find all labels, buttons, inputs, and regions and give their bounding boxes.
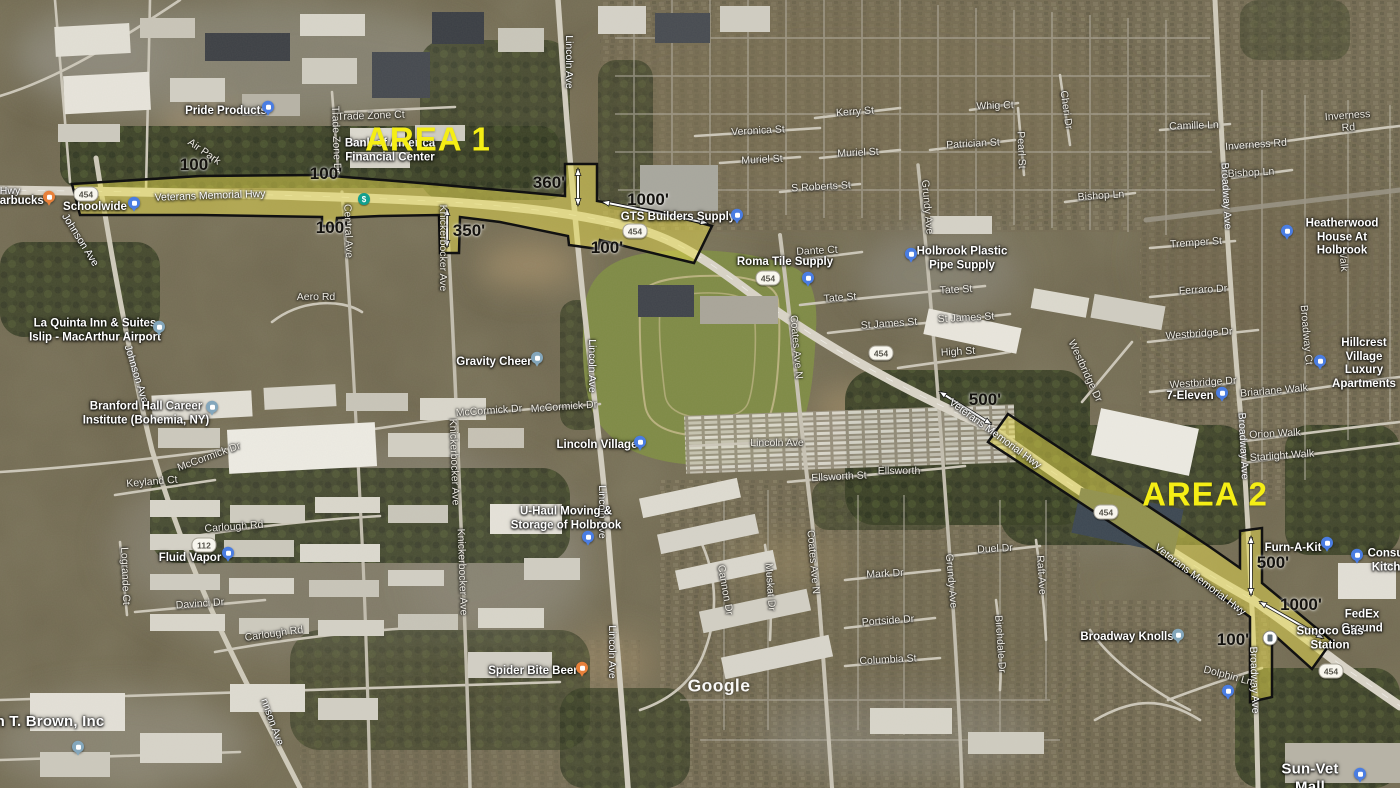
map-labels: HwyVeterans Memorial HwyVeterans Memoria… bbox=[0, 0, 1400, 788]
poi-label-sunoco-gas-station[interactable]: Sunoco Gas Station bbox=[1295, 625, 1365, 652]
marker-gravity-cheer-icon[interactable] bbox=[531, 352, 543, 364]
measurement-label-100: 100' bbox=[180, 155, 212, 175]
marker-t-brown-inc-icon[interactable] bbox=[72, 741, 84, 753]
measurement-label-1000: 1000' bbox=[1280, 595, 1322, 615]
street-label-coates-ave-n: Coates Ave N bbox=[804, 530, 822, 595]
street-label-lincoln-ave: Lincoln Ave bbox=[606, 625, 618, 679]
street-label-johnson-ave: Johnson Ave bbox=[59, 211, 101, 268]
measurement-label-100: 100' bbox=[310, 164, 342, 184]
marker-broadway-knolls-icon[interactable] bbox=[1172, 629, 1184, 641]
street-label-knickerbocker-ave: Knickerbocker Ave bbox=[454, 528, 469, 615]
street-label-nnson-ave: nnson Ave bbox=[258, 697, 286, 747]
street-label-mccormick-dr: McCormick Dr bbox=[455, 403, 522, 420]
poi-label-consumer-kitchens[interactable]: Consumer Kitchens bbox=[1368, 547, 1400, 574]
marker-roma-tile-supply-icon[interactable] bbox=[802, 272, 814, 284]
street-label-lincoln-ave: Lincoln Ave bbox=[586, 339, 598, 393]
poi-label-la-quinta[interactable]: La Quinta Inn & Suites Islip - MacArthur… bbox=[29, 317, 161, 344]
street-label-lincoln-ave: Lincoln Ave bbox=[563, 35, 575, 89]
street-label-carlough-rd: Carlough Rd bbox=[204, 519, 264, 535]
route-shield-454: 454 bbox=[623, 224, 648, 239]
street-label-veronica-st: Veronica St bbox=[731, 123, 785, 138]
route-shield-112: 112 bbox=[192, 538, 217, 553]
street-label-lincoln-ave: Lincoln Ave bbox=[750, 437, 804, 449]
poi-label-sun-vet-mall[interactable]: Sun-Vet Mall bbox=[1265, 760, 1355, 788]
street-label-raft-ave: Raft Ave bbox=[1033, 555, 1048, 595]
street-label-camille-ln: Camille Ln bbox=[1169, 119, 1219, 133]
street-label-grundy-ave: Grundy Ave bbox=[918, 179, 935, 235]
marker-heatherwood-house-icon[interactable] bbox=[1281, 225, 1293, 237]
street-label-st-james-st: St James St bbox=[860, 316, 917, 332]
measurement-label-100: 100' bbox=[591, 238, 623, 258]
area-label-area-1-label: AREA 1 bbox=[365, 121, 491, 160]
route-shield-454: 454 bbox=[869, 346, 894, 361]
street-label-birchdale-dr: Birchdale Dr bbox=[992, 615, 1008, 674]
poi-label-t-brown-inc[interactable]: n T. Brown, Inc bbox=[0, 713, 104, 731]
marker-schoolwide-icon[interactable] bbox=[128, 197, 140, 209]
measurement-label-100: 100' bbox=[316, 218, 348, 238]
street-label-cheri-dr: Cheri Dr bbox=[1057, 90, 1075, 130]
street-label-tate-st: Tate St bbox=[939, 283, 972, 297]
poi-label-fluid-vapor[interactable]: Fluid Vapor bbox=[159, 552, 222, 566]
poi-label-heatherwood-house[interactable]: Heatherwood House At Holbrook bbox=[1306, 218, 1379, 259]
street-label-bishop-ln: Bishop Ln bbox=[1077, 188, 1124, 204]
street-label-bishop-ln: Bishop Ln bbox=[1227, 166, 1274, 181]
street-label-orion-walk: Orion Walk bbox=[1249, 426, 1301, 441]
poi-label-gravity-cheer[interactable]: Gravity Cheer bbox=[456, 356, 531, 370]
street-label-coates-ave-n: Coates Ave N bbox=[787, 315, 805, 380]
street-label-ellsworth-st: Ellsworth St bbox=[811, 469, 867, 484]
poi-label-lincoln-village[interactable]: Lincoln Village bbox=[557, 439, 638, 453]
marker-gts-builders-supply-icon[interactable] bbox=[731, 209, 743, 221]
measurement-label-500: 500' bbox=[969, 390, 1001, 410]
street-label-inverness-rd: Inverness Rd bbox=[1225, 137, 1288, 154]
marker-furn-a-kit-icon[interactable] bbox=[1321, 537, 1333, 549]
street-label-portside-dr: Portside Dr bbox=[861, 613, 914, 629]
marker-spider-bite-beer-icon[interactable] bbox=[576, 662, 588, 674]
street-label-broadway-ct: Broadway Ct bbox=[1297, 305, 1315, 366]
area-label-area-2-label: AREA 2 bbox=[1142, 476, 1268, 515]
street-label-inverness-rd: Inverness Rd bbox=[1321, 108, 1375, 136]
marker-consumer-kitchens-icon[interactable] bbox=[1351, 549, 1363, 561]
route-shield-454: 454 bbox=[74, 187, 99, 202]
measurement-label-1000: 1000' bbox=[627, 190, 669, 210]
street-label-knickerbocker-ave: Knickerbocker Ave bbox=[437, 205, 449, 292]
street-label-cannon-dr: Cannon Dr bbox=[714, 564, 735, 616]
street-label-kerry-st: Kerry St bbox=[836, 105, 875, 120]
street-label-duel-dr: Duel Dr bbox=[977, 542, 1013, 556]
street-label-ellsworth: Ellsworth bbox=[878, 465, 921, 477]
satellite-map[interactable]: HwyVeterans Memorial HwyVeterans Memoria… bbox=[0, 0, 1400, 788]
street-label-columbia-st: Columbia St bbox=[859, 652, 917, 667]
street-label-grundy-ave: Grundy Ave bbox=[942, 553, 959, 609]
marker-holbrook-plastic-pipe-supply-icon[interactable] bbox=[905, 248, 917, 260]
poi-label-hillcrest-village[interactable]: Hillcrest Village Luxury Apartments bbox=[1332, 337, 1396, 391]
street-label-veterans-memorial-hwy: Veterans Memorial Hwy bbox=[154, 188, 265, 204]
street-label-muriel-st: Muriel St bbox=[837, 146, 879, 161]
street-label-muskat-dr: Muskat Dr bbox=[762, 563, 778, 612]
street-label-muriel-st: Muriel St bbox=[741, 153, 783, 168]
street-label-carlough-rd: Carlough Rd bbox=[244, 624, 304, 644]
poi-label-starbucks[interactable]: Starbucks bbox=[0, 195, 44, 209]
poi-label-branford-hall[interactable]: Branford Hall Career Institute (Bohemia,… bbox=[83, 400, 210, 427]
marker-bank-of-america-atm-icon[interactable] bbox=[358, 193, 370, 205]
marker-sun-vet-mall-icon[interactable] bbox=[1354, 768, 1366, 780]
street-label-aero-rd: Aero Rd bbox=[297, 291, 336, 303]
measurement-label-360: 360' bbox=[533, 173, 565, 193]
street-label-tremper-st: Tremper St bbox=[1170, 235, 1223, 251]
measurement-label-350: 350' bbox=[453, 221, 485, 241]
marker-fluid-vapor-icon[interactable] bbox=[222, 547, 234, 559]
google-watermark: Google bbox=[688, 676, 751, 697]
marker-pride-products-icon[interactable] bbox=[262, 101, 274, 113]
marker-hillcrest-village-icon[interactable] bbox=[1314, 355, 1326, 367]
street-label-veterans-memorial-hwy: Veterans Memorial Hwy bbox=[1152, 542, 1248, 619]
street-label-westbridge-dr: Westbridge Dr bbox=[1065, 338, 1104, 404]
street-label-pearl-st: Pearl St bbox=[1014, 131, 1028, 169]
street-label-st-james-st: St James St bbox=[937, 310, 994, 325]
street-label-high-st: High St bbox=[940, 345, 975, 359]
street-label-knickerbocker-ave: Knickerbocker Ave bbox=[446, 418, 461, 505]
street-label-keyland-ct: Keyland Ct bbox=[126, 474, 178, 491]
poi-label-pride-products[interactable]: Pride Products bbox=[185, 105, 267, 119]
street-label-ferraro-dr: Ferraro Dr bbox=[1178, 283, 1227, 298]
marker-u-haul-icon[interactable] bbox=[582, 531, 594, 543]
marker-seven-eleven-icon[interactable] bbox=[1216, 387, 1228, 399]
measurement-label-500: 500' bbox=[1257, 553, 1289, 573]
street-label-davinci-dr: Davinci Dr bbox=[175, 596, 224, 612]
street-label-mark-dr: Mark Dr bbox=[866, 567, 904, 581]
street-label-broadway-ave: Broadway Ave bbox=[1235, 412, 1251, 479]
marker-lincoln-village-icon[interactable] bbox=[634, 436, 646, 448]
street-label-patrician-st: Patrician St bbox=[946, 136, 1000, 151]
street-label-mccormick-dr: McCormick Dr bbox=[176, 440, 243, 474]
street-label-whig-ct: Whig Ct bbox=[976, 99, 1014, 113]
street-label-johnson-ave: Johnson Ave bbox=[121, 344, 150, 405]
measurement-label-100: 100' bbox=[1217, 630, 1249, 650]
street-label-westbridge-dr: Westbridge Dr bbox=[1165, 325, 1233, 342]
route-shield-454: 454 bbox=[1094, 505, 1119, 520]
street-label-briarlane-walk: Briarlane Walk bbox=[1240, 382, 1309, 400]
poi-label-spider-bite-beer[interactable]: Spider Bite Beer bbox=[488, 665, 577, 679]
street-label-logrande-ct: Logrande Ct bbox=[118, 547, 132, 605]
street-label-mccormick-dr: McCormick Dr bbox=[530, 399, 597, 416]
route-shield-454: 454 bbox=[756, 271, 781, 286]
marker-branford-hall-icon[interactable] bbox=[206, 401, 218, 413]
street-label-tate-st: Tate St bbox=[823, 291, 856, 306]
marker-sunoco-gas-station-icon[interactable] bbox=[1263, 631, 1278, 646]
poi-label-holbrook-plastic-pipe-supply[interactable]: Holbrook Plastic Pipe Supply bbox=[917, 245, 1008, 272]
poi-label-broadway-knolls[interactable]: Broadway Knolls bbox=[1080, 631, 1173, 645]
poi-label-roma-tile-supply[interactable]: Roma Tile Supply bbox=[737, 256, 833, 270]
poi-label-schoolwide[interactable]: Schoolwide bbox=[63, 201, 127, 215]
poi-label-seven-eleven[interactable]: 7-Eleven bbox=[1166, 390, 1213, 404]
marker-unlabeled-business-icon[interactable] bbox=[1222, 685, 1234, 697]
street-label-s-roberts-st: S Roberts St bbox=[791, 179, 851, 194]
marker-la-quinta-icon[interactable] bbox=[153, 321, 165, 333]
poi-label-u-haul[interactable]: U-Haul Moving & Storage of Holbrook bbox=[511, 505, 622, 532]
marker-starbucks-icon[interactable] bbox=[43, 191, 55, 203]
street-label-starlight-walk: Starlight Walk bbox=[1249, 448, 1314, 465]
route-shield-454: 454 bbox=[1319, 664, 1344, 679]
